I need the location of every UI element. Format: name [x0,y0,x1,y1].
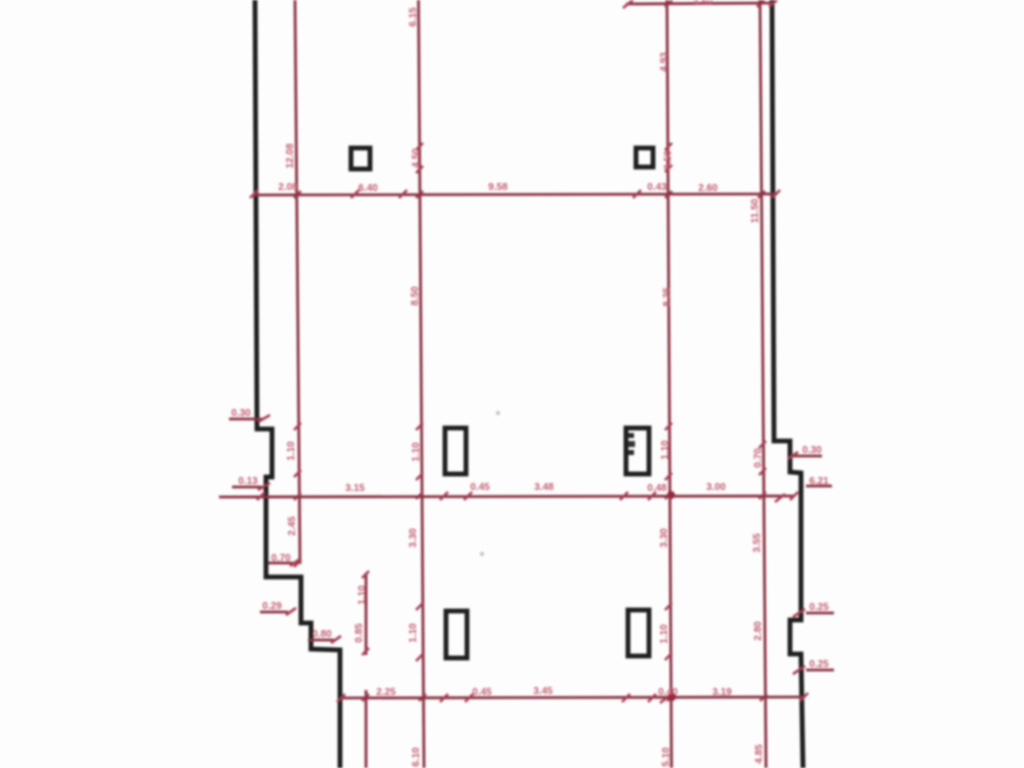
svg-text:0.43: 0.43 [647,182,667,193]
svg-text:2.25: 2.25 [376,687,396,698]
svg-text:0.25: 0.25 [809,659,829,670]
svg-text:2.80: 2.80 [753,621,764,641]
svg-text:9.58: 9.58 [488,182,508,193]
svg-text:1.10: 1.10 [408,623,419,643]
svg-text:3.48: 3.48 [534,482,554,493]
svg-text:2.60: 2.60 [698,183,718,194]
svg-text:0.48: 0.48 [647,483,667,494]
svg-text:0.40: 0.40 [658,687,678,698]
svg-text:3.19: 3.19 [712,687,732,698]
svg-text:0.30: 0.30 [802,445,822,456]
svg-text:4.93: 4.93 [659,52,670,72]
svg-text:1.10: 1.10 [659,624,670,644]
svg-text:0.29: 0.29 [262,601,282,612]
svg-text:0.70: 0.70 [753,448,764,468]
svg-text:1.10: 1.10 [660,440,671,460]
svg-text:0.85: 0.85 [354,623,365,643]
svg-text:3.55: 3.55 [752,533,763,553]
svg-text:1.10: 1.10 [411,442,422,462]
svg-text:6.10: 6.10 [411,747,422,767]
svg-text:5.10: 5.10 [661,747,672,767]
svg-text:4.85: 4.85 [754,744,765,764]
svg-text:0.45: 0.45 [470,482,490,493]
svg-text:12.08: 12.08 [285,143,296,168]
svg-text:4.60: 4.60 [693,0,713,8]
svg-text:0.13: 0.13 [238,476,258,487]
svg-text:1.10: 1.10 [286,441,297,461]
svg-text:0.70: 0.70 [271,553,291,564]
svg-text:11.50: 11.50 [750,198,761,223]
svg-text:8.50: 8.50 [410,286,421,306]
svg-text:0.50: 0.50 [663,150,674,170]
svg-text:3.15: 3.15 [345,483,365,494]
svg-text:6.15: 6.15 [408,7,419,27]
svg-text:0.30: 0.30 [231,408,251,419]
svg-text:3.30: 3.30 [408,528,419,548]
svg-text:3.45: 3.45 [533,686,553,697]
svg-text:3.00: 3.00 [706,482,726,493]
svg-text:2.08: 2.08 [278,182,298,193]
svg-text:6.40: 6.40 [358,183,378,194]
svg-text:4.50: 4.50 [411,148,422,168]
svg-text:1.10: 1.10 [357,585,368,605]
svg-text:0.45: 0.45 [472,687,492,698]
svg-text:0.80: 0.80 [312,629,332,640]
svg-text:3.30: 3.30 [659,528,670,548]
svg-text:8.25: 8.25 [662,287,673,307]
svg-text:0.25: 0.25 [809,602,829,613]
svg-text:2.45: 2.45 [287,516,298,536]
svg-text:6.21: 6.21 [809,476,829,487]
